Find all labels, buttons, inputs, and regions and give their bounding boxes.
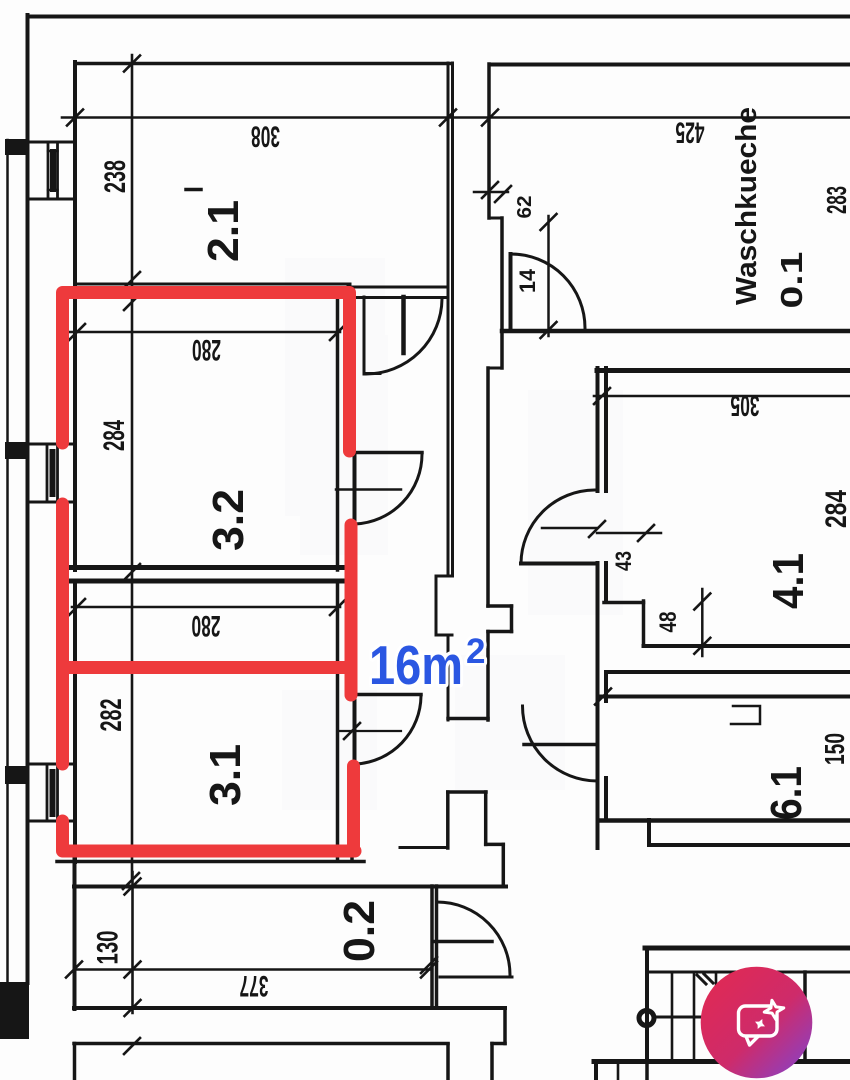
svg-text:283: 283 xyxy=(821,186,850,214)
svg-text:4.1: 4.1 xyxy=(764,553,813,609)
svg-text:3.2: 3.2 xyxy=(204,489,253,551)
svg-text:305: 305 xyxy=(731,389,760,422)
svg-text:0.2: 0.2 xyxy=(335,900,384,962)
svg-text:43: 43 xyxy=(611,551,636,571)
svg-text:150: 150 xyxy=(819,733,850,765)
svg-text:377: 377 xyxy=(240,969,269,1002)
svg-text:Waschkueche: Waschkueche xyxy=(731,107,763,305)
svg-text:3.1: 3.1 xyxy=(201,744,250,806)
svg-text:2.1: 2.1 xyxy=(199,200,248,262)
svg-text:16m: 16m xyxy=(369,634,463,696)
svg-text:284: 284 xyxy=(98,420,131,451)
svg-text:48: 48 xyxy=(655,612,682,633)
svg-text:280: 280 xyxy=(192,333,221,366)
svg-text:14: 14 xyxy=(515,268,540,293)
svg-text:0.1: 0.1 xyxy=(774,252,809,309)
svg-text:238: 238 xyxy=(99,160,132,193)
svg-text:62: 62 xyxy=(514,196,536,219)
svg-text:6.1: 6.1 xyxy=(762,766,811,820)
svg-text:425: 425 xyxy=(676,116,705,149)
svg-text:2: 2 xyxy=(466,632,485,671)
svg-text:284: 284 xyxy=(820,490,850,528)
svg-text:282: 282 xyxy=(95,699,128,732)
svg-text:280: 280 xyxy=(192,609,221,642)
svg-text:130: 130 xyxy=(92,931,125,965)
svg-text:308: 308 xyxy=(251,120,280,153)
